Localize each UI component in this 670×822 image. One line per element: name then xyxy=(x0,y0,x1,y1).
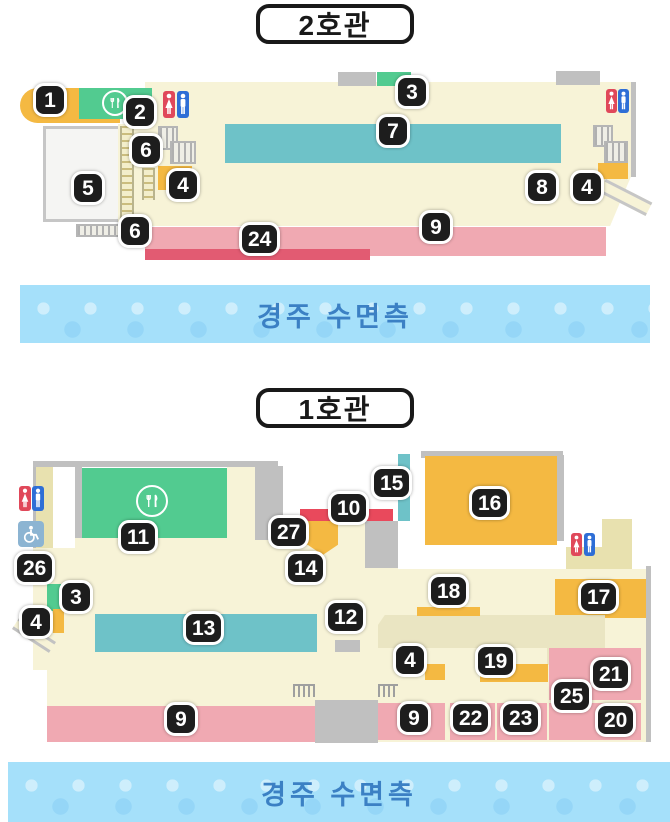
room-badge-b1-27: 27 xyxy=(268,515,309,549)
room-badge-b2-9: 9 xyxy=(419,210,453,244)
room-badge-b1-17: 17 xyxy=(578,580,619,614)
female-restroom-icon xyxy=(163,91,175,118)
room-badge-b2-7: 7 xyxy=(376,114,410,148)
female-restroom-icon xyxy=(19,486,31,511)
b1-stairs-icon-left xyxy=(293,684,315,697)
wheelchair-accessible-icon xyxy=(18,521,44,547)
female-restroom-icon xyxy=(606,89,617,113)
male-restroom-icon xyxy=(584,533,595,556)
waterside-banner-top-label: 경주 수면측 xyxy=(257,295,413,334)
venue-floor-map: 2호관 1 2 3 7 6 4 5 8 4 6 24 9 xyxy=(0,0,670,822)
room-badge-b1-12: 12 xyxy=(325,600,366,634)
b1-top-wall xyxy=(33,461,278,467)
room-badge-b1-18: 18 xyxy=(428,574,469,608)
room-badge-b1-15: 15 xyxy=(371,466,412,500)
room-badge-b1-13: 13 xyxy=(183,611,224,645)
room-badge-b2-6b: 6 xyxy=(118,214,152,248)
b1-restaurant-left-wall xyxy=(75,462,82,538)
b1-corner-void xyxy=(33,670,47,743)
room-badge-b1-21: 21 xyxy=(590,657,631,691)
room-badge-b1-4b: 4 xyxy=(393,643,427,677)
b1-bottom-gray-block xyxy=(315,700,378,743)
waterside-banner-bottom-label: 경주 수면측 xyxy=(261,773,417,812)
room-badge-b1-19: 19 xyxy=(475,644,516,678)
room-badge-b1-10: 10 xyxy=(328,491,369,525)
b1-orange-zone-18 xyxy=(417,607,480,616)
b1-stairs-icon-right xyxy=(378,684,398,697)
waterside-banner-bottom: 경주 수면측 xyxy=(8,762,670,822)
room-badge-b1-16: 16 xyxy=(469,486,510,520)
room-badge-b1-22: 22 xyxy=(450,701,491,735)
room-badge-b1-14: 14 xyxy=(285,551,326,585)
room-badge-b2-4a: 4 xyxy=(166,168,200,202)
b1-corridor-gap xyxy=(227,466,255,548)
b2-right-stairs-icon-b xyxy=(604,141,628,163)
room-badge-b1-4a: 4 xyxy=(19,605,53,639)
b2-right-wall xyxy=(631,82,636,177)
room-badge-b1-3: 3 xyxy=(59,580,93,614)
b2-top-notch-gray-b xyxy=(556,71,600,85)
b1-center-wall-block xyxy=(365,521,398,568)
room-badge-b1-20: 20 xyxy=(595,703,636,737)
restaurant-fork-knife-icon xyxy=(136,485,168,517)
male-restroom-icon xyxy=(32,486,44,511)
room-badge-b1-26: 26 xyxy=(14,551,55,585)
waterside-banner-top: 경주 수면측 xyxy=(20,285,650,343)
building1-title: 1호관 xyxy=(256,388,414,428)
female-restroom-icon xyxy=(571,533,582,556)
room-badge-b1-9b: 9 xyxy=(397,701,431,735)
room-badge-b1-25: 25 xyxy=(551,679,592,713)
building1-title-label: 1호관 xyxy=(298,388,371,428)
b2-stairs-lower-icon xyxy=(76,224,120,237)
room-badge-b2-2: 2 xyxy=(123,95,157,129)
room-badge-b1-9a: 9 xyxy=(164,702,198,736)
b1-gray-block-12 xyxy=(335,640,360,652)
room-badge-b1-11: 11 xyxy=(118,520,158,554)
room-badge-b2-8: 8 xyxy=(525,170,559,204)
b1-tan-tower xyxy=(602,519,632,569)
b1-hall16-right-wall xyxy=(557,455,564,541)
male-restroom-icon xyxy=(177,91,189,118)
room-badge-b2-3: 3 xyxy=(395,75,429,109)
room-badge-b2-24: 24 xyxy=(239,222,280,256)
b2-stairs-upper-icon-b xyxy=(170,141,196,164)
room-badge-b2-1: 1 xyxy=(33,83,67,117)
b1-orange-zone-4-mid xyxy=(425,664,445,680)
room-badge-b1-23: 23 xyxy=(500,701,541,735)
building2-title-label: 2호관 xyxy=(298,4,371,44)
building2-title: 2호관 xyxy=(256,4,414,44)
b1-floor-under-restaurant xyxy=(75,538,283,548)
room-badge-b2-5: 5 xyxy=(71,171,105,205)
b1-right-wall xyxy=(646,566,651,742)
room-badge-b2-4b: 4 xyxy=(570,170,604,204)
b1-orange-zone-4-left xyxy=(53,609,64,633)
b2-top-notch-gray-a xyxy=(338,72,376,86)
room-badge-b2-6a: 6 xyxy=(129,133,163,167)
b2-ladder-stairs-icon xyxy=(142,168,155,200)
male-restroom-icon xyxy=(618,89,629,113)
